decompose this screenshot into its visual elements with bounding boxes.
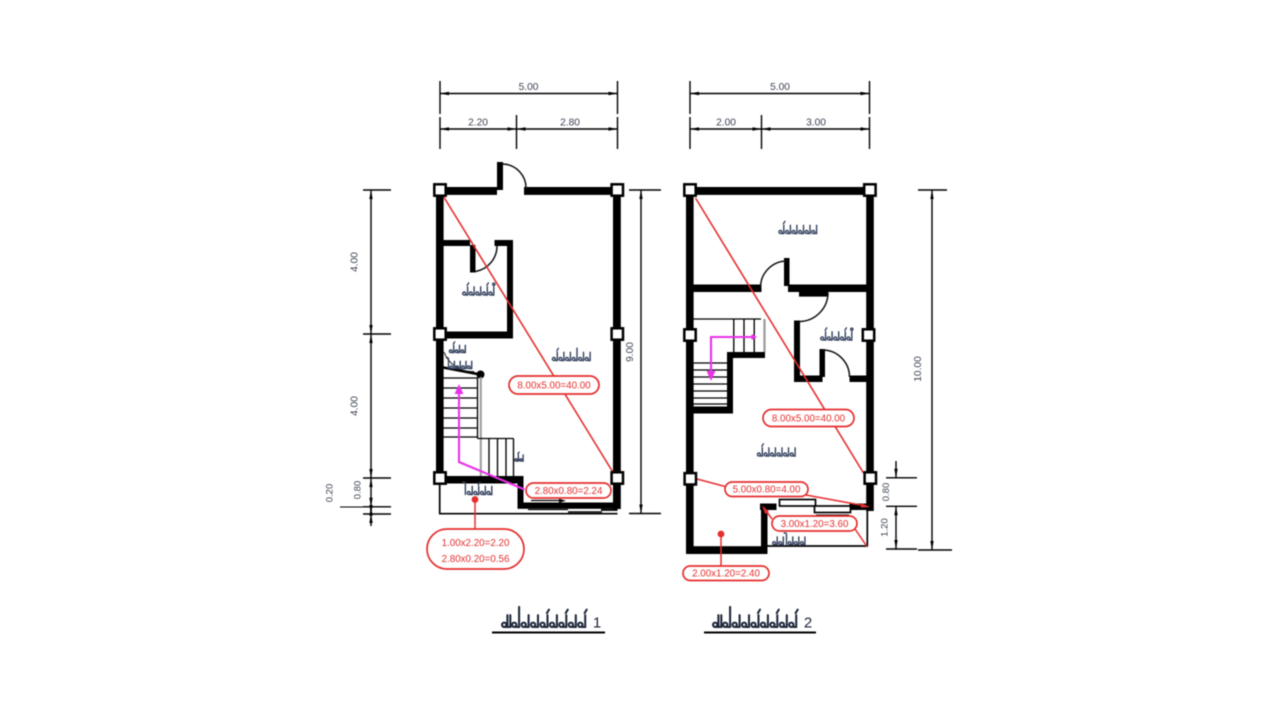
svg-text:5.00: 5.00 <box>519 82 539 93</box>
svg-text:1.20: 1.20 <box>880 518 891 537</box>
svg-text:10.00: 10.00 <box>913 356 924 382</box>
svg-text:8.00x5.00=40.00: 8.00x5.00=40.00 <box>772 414 846 425</box>
svg-text:2: 2 <box>804 615 812 632</box>
svg-text:9.00: 9.00 <box>625 342 636 362</box>
svg-text:0.80: 0.80 <box>353 481 364 500</box>
svg-text:5.00x0.80=4.00: 5.00x0.80=4.00 <box>733 485 801 496</box>
svg-text:2.00: 2.00 <box>716 118 736 129</box>
svg-text:0.80: 0.80 <box>881 483 892 502</box>
svg-text:2.20: 2.20 <box>468 118 488 129</box>
svg-text:5.00: 5.00 <box>770 82 790 93</box>
svg-text:3.00: 3.00 <box>806 118 826 129</box>
svg-text:4.00: 4.00 <box>350 396 361 416</box>
svg-text:0.20: 0.20 <box>325 484 336 503</box>
svg-text:2.80x0.20=0.56: 2.80x0.20=0.56 <box>442 554 510 565</box>
svg-text:2.00x1.20=2.40: 2.00x1.20=2.40 <box>692 569 760 580</box>
svg-text:3.00x1.20=3.60: 3.00x1.20=3.60 <box>781 519 849 530</box>
svg-text:1: 1 <box>593 615 601 632</box>
svg-text:2.80x0.80=2.24: 2.80x0.80=2.24 <box>535 486 603 497</box>
svg-text:2.80: 2.80 <box>560 118 580 129</box>
svg-text:8.00x5.00=40.00: 8.00x5.00=40.00 <box>517 381 591 392</box>
svg-text:1.00x2.20=2.20: 1.00x2.20=2.20 <box>442 538 510 549</box>
svg-text:4.00: 4.00 <box>350 252 361 272</box>
